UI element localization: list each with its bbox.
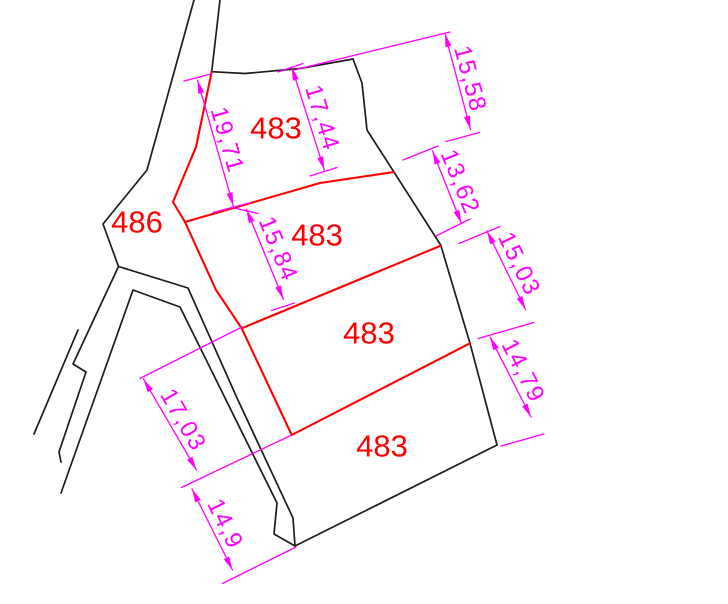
dimension-text: 15,03 [492,228,546,301]
extension-line [223,547,297,584]
dimension-text: 13,62 [435,146,485,219]
extension-line [436,219,470,236]
parcel-labels: 486 483 483 483 483 [111,111,408,464]
dimension-14-79: 14,79 [490,335,550,446]
parcel-divider-3 [292,343,470,435]
dimension-13-62: 13,62 [403,146,485,236]
cadastral-plan-svg: 19,71 17,44 15,58 13,62 15,03 [0,0,728,604]
dimension-text: 19,71 [205,104,250,176]
extension-line [478,323,534,339]
dimension-text: 17,44 [299,82,345,155]
cad-drawing-canvas: 19,71 17,44 15,58 13,62 15,03 [0,0,728,604]
parcel-label-486: 486 [111,205,163,240]
dimension-text: 17,03 [154,384,211,456]
dimension-text: 15,58 [448,43,492,115]
parcel-label-483-2: 483 [291,218,343,253]
extension-line [501,434,544,446]
parcel-label-483-1: 483 [250,111,302,146]
dimensions-layer: 19,71 17,44 15,58 13,62 15,03 [140,32,550,584]
dimension-text: 14,79 [496,335,551,407]
dimension-19-71: 19,71 [184,74,251,213]
extension-line [140,327,242,379]
dimension-14-9: 14,9 [192,489,296,584]
black-boundaries [34,0,497,546]
extension-line [296,32,450,70]
extension-line [446,133,480,142]
top-left-line [212,0,220,72]
parcel-divider-1 [185,172,394,222]
dimension-15-03: 15,03 [459,227,546,339]
dimension-text: 14,9 [201,494,248,553]
parcel-label-483-4: 483 [356,429,408,464]
extension-line [235,208,259,214]
parcel-label-483-3: 483 [343,316,395,351]
road-left-arm [59,267,119,463]
road-stub-line [34,330,78,434]
